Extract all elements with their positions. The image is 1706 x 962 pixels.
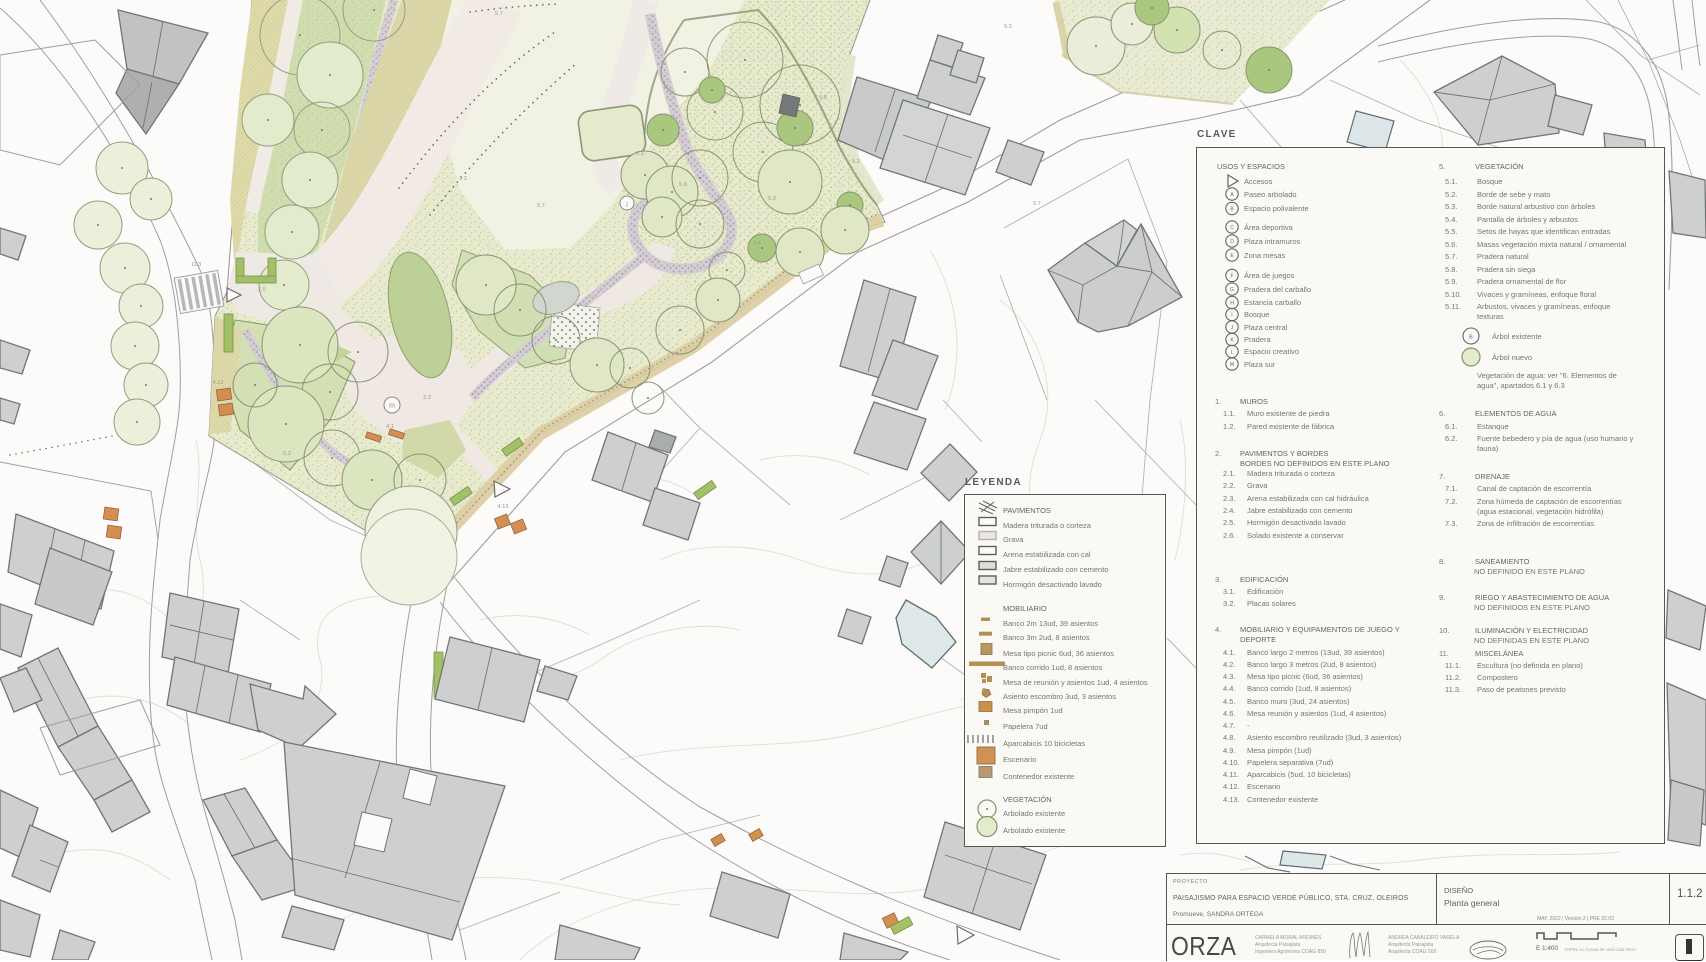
svg-text:4.13: 4.13 [213, 380, 224, 386]
svg-text:5.3: 5.3 [1004, 24, 1012, 30]
svg-text:5.3: 5.3 [768, 196, 776, 202]
svg-text:11.3: 11.3 [191, 262, 201, 268]
svg-text:5.6: 5.6 [679, 182, 687, 188]
svg-text:H: H [1230, 301, 1234, 307]
svg-text:K: K [1230, 338, 1234, 344]
svg-text:j: j [625, 202, 627, 208]
svg-text:2.3: 2.3 [459, 176, 467, 182]
svg-text:5.8: 5.8 [819, 95, 827, 101]
svg-text:4.1: 4.1 [386, 424, 394, 430]
svg-text:J: J [1231, 325, 1234, 331]
svg-text:m: m [389, 403, 395, 410]
svg-text:F: F [1230, 274, 1233, 280]
svg-text:4.13: 4.13 [498, 504, 509, 510]
svg-text:B: B [1230, 207, 1234, 213]
svg-text:D: D [1230, 239, 1234, 245]
svg-text:2.5: 2.5 [258, 287, 266, 293]
svg-text:C: C [1230, 225, 1234, 231]
svg-text:M: M [1230, 362, 1234, 368]
svg-text:E: E [1230, 253, 1234, 259]
svg-text:5.7: 5.7 [495, 11, 503, 17]
svg-text:5.3: 5.3 [283, 451, 291, 457]
svg-text:L: L [1231, 350, 1234, 356]
svg-text:B: B [1469, 335, 1473, 341]
svg-text:2.4: 2.4 [753, 241, 761, 247]
svg-text:5.7: 5.7 [1033, 201, 1041, 207]
svg-text:G: G [1230, 287, 1234, 293]
svg-text:5.2: 5.2 [852, 159, 860, 165]
svg-text:3.3: 3.3 [423, 395, 431, 401]
svg-text:I: I [1231, 313, 1232, 319]
svg-text:2.1: 2.1 [636, 151, 644, 157]
svg-text:5.7: 5.7 [537, 203, 545, 209]
svg-text:A: A [1230, 192, 1234, 198]
